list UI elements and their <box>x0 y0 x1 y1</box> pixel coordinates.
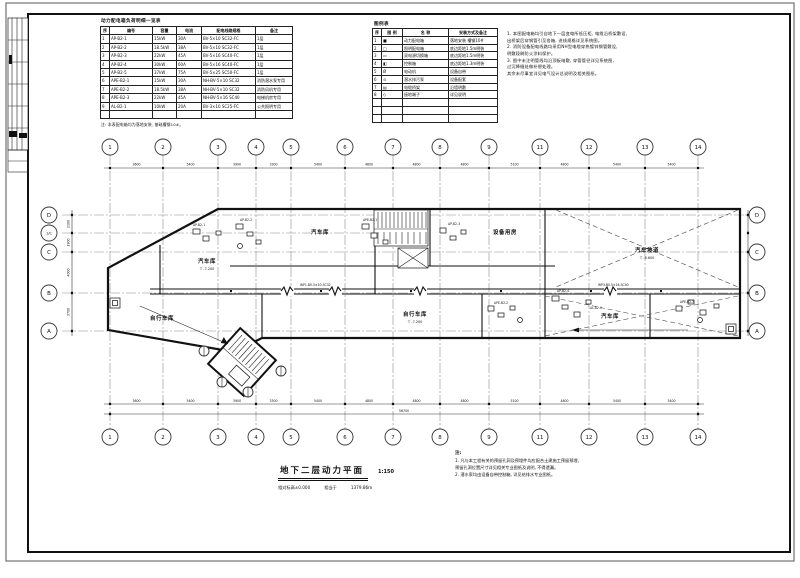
svg-text:12: 12 <box>586 145 593 151</box>
table-cell: 75A <box>177 69 202 77</box>
svg-text:3: 3 <box>216 435 219 441</box>
equipment-tag: APE-B2-3 <box>680 300 694 304</box>
equipment-tag: AP-B2-2 <box>240 218 252 222</box>
table-cell: NH-BV-5×10 SC32 <box>202 77 256 85</box>
table-cell <box>177 111 202 119</box>
table-cell: 1层 <box>256 35 293 43</box>
table-cell: AP-B2-5 <box>110 69 153 77</box>
svg-text:5400: 5400 <box>186 399 194 403</box>
svg-text:B: B <box>47 291 51 297</box>
table-cell: 5 <box>101 69 110 77</box>
equipment-tag: WP3-BV-5×16-SC40 <box>598 283 629 287</box>
table-cell: AP-B2-2 <box>110 44 153 52</box>
table-cell: 1层 <box>256 52 293 60</box>
equipment-tag: APE-B2-2 <box>494 301 508 305</box>
table-cell: 沿墙明敷 <box>449 84 498 92</box>
svg-text:7: 7 <box>391 145 394 151</box>
table-cell <box>403 115 449 123</box>
svg-text:14: 14 <box>695 435 702 441</box>
table-cell <box>373 107 382 115</box>
table-cell: ▭ <box>382 52 403 60</box>
table-cell: 5 <box>373 68 382 76</box>
table-cell: 电缆桥架 <box>403 84 449 92</box>
svg-text:4800: 4800 <box>460 163 468 167</box>
table-header-cell: 序 <box>373 29 382 37</box>
table-cell: BV-5×16 SC40-FC <box>202 61 256 69</box>
elevation-reference-row: 相对标高±0.000 相当于 1379.86m <box>278 485 478 491</box>
power-table-title: 动力配电箱负荷明细一览表 <box>101 18 161 24</box>
table-cell <box>449 107 498 115</box>
table-cell: 1层 <box>256 61 293 69</box>
table-cell: 1 <box>373 37 382 45</box>
svg-text:5400: 5400 <box>186 163 194 167</box>
table-cell: 3 <box>101 52 110 60</box>
table-cell <box>449 115 498 123</box>
svg-text:13: 13 <box>642 435 649 441</box>
svg-text:2: 2 <box>161 435 164 441</box>
table-cell <box>403 99 449 107</box>
table-cell: 8 <box>101 94 110 102</box>
svg-text:C: C <box>755 250 759 256</box>
table-cell: BV-5×25 SC50-FC <box>202 69 256 77</box>
table-cell: 2 <box>101 44 110 52</box>
svg-text:3700: 3700 <box>67 308 71 316</box>
svg-text:2100: 2100 <box>67 220 71 228</box>
table-cell: 18.5kW <box>153 44 177 52</box>
svg-text:4800: 4800 <box>560 399 568 403</box>
table-cell: 45A <box>177 94 202 102</box>
svg-text:4800: 4800 <box>412 163 420 167</box>
equipment-tag: AP-B2-1 <box>193 223 205 227</box>
table-cell: 18.5kW <box>153 86 177 94</box>
elevation-ref-middle: 相当于 <box>324 485 337 491</box>
svg-text:5: 5 <box>289 145 292 151</box>
svg-text:3300: 3300 <box>269 163 277 167</box>
side-title-strip <box>8 18 28 172</box>
plan-notes-header: 注: <box>455 450 579 457</box>
table-cell: 8 <box>373 91 382 99</box>
svg-text:5400: 5400 <box>667 163 675 167</box>
table-cell: 详见说明 <box>449 91 498 99</box>
equipment-tag: AP-B2-3 <box>448 222 460 226</box>
svg-text:5100: 5100 <box>510 163 518 167</box>
table-cell: 7 <box>373 84 382 92</box>
svg-text:5400: 5400 <box>314 163 322 167</box>
table-cell: APE-B2-3 <box>110 94 153 102</box>
table-header-cell: 备注 <box>256 27 293 35</box>
table-cell: AP-B2-1 <box>110 35 153 43</box>
svg-text:A: A <box>755 329 759 335</box>
table-cell: 1层 <box>256 69 293 77</box>
table-cell: 4 <box>373 60 382 68</box>
room-label: 自行车库 <box>150 314 174 322</box>
note-line: 其余未尽事宜详见电气设计总说明及相关图纸。 <box>507 71 707 78</box>
svg-text:3600: 3600 <box>132 163 140 167</box>
table-cell: APE-B2-1 <box>110 77 153 85</box>
table-cell: 设备配套 <box>449 76 498 84</box>
table-cell <box>382 107 403 115</box>
table-cell: ◧ <box>382 60 403 68</box>
table-cell: 15kW <box>153 77 177 85</box>
table-cell <box>382 99 403 107</box>
table-cell: 落地安装 槽钢10# <box>449 37 498 45</box>
table-cell: 10kW <box>153 103 177 111</box>
svg-text:A: A <box>47 329 51 335</box>
table-cell: 4 <box>101 61 110 69</box>
table-cell <box>382 115 403 123</box>
elevation-ref-label: 相对标高±0.000 <box>278 485 310 491</box>
table-cell: 动力配电箱 <box>403 37 449 45</box>
table-header-cell: 序 <box>101 27 110 35</box>
svg-text:1: 1 <box>108 435 111 441</box>
legend-table: 序图 例名 称安装方式及备注1■动力配电箱落地安装 槽钢10#2□照明配电箱底边… <box>372 28 498 123</box>
table-cell: ⊙ <box>382 76 403 84</box>
ramp-arrow <box>572 328 688 333</box>
svg-text:B: B <box>755 291 759 297</box>
table-cell: 38A <box>177 44 202 52</box>
table-cell: 38A <box>177 86 202 94</box>
table-cell: 底边距地1.3m明装 <box>449 60 498 68</box>
table-header-cell: 安装方式及备注 <box>449 29 498 37</box>
table-cell: 37kW <box>153 69 177 77</box>
svg-text:3900: 3900 <box>233 399 241 403</box>
svg-text:D: D <box>755 213 759 219</box>
note-line: 过沉降缝处做补偿处理。 <box>507 64 707 71</box>
elevator-shaft <box>398 248 428 268</box>
svg-text:D: D <box>47 213 51 219</box>
table-header-cell: 编号 <box>110 27 153 35</box>
svg-text:5400: 5400 <box>613 163 621 167</box>
table-cell: 2 <box>373 45 382 53</box>
note-line: 2. 潜水泵均由设备自带控制箱, 详见给排水专业图纸。 <box>455 472 579 479</box>
svg-text:5100: 5100 <box>510 399 518 403</box>
svg-text:4800: 4800 <box>412 399 420 403</box>
table-cell: 公共照明专用 <box>256 103 293 111</box>
table-cell: BV-5×10 SC32-FC <box>202 35 256 43</box>
general-notes: 1. 本图配电箱均引自地下一层变电所低压柜, 电缆沿桥架敷设, 出桥架后穿钢管引… <box>507 31 707 77</box>
svg-text:12: 12 <box>586 435 593 441</box>
table-header-cell: 名 称 <box>403 29 449 37</box>
table-cell: NH-BV-5×16 SC40 <box>202 94 256 102</box>
svg-text:▽ -6.600: ▽ -6.600 <box>640 256 655 260</box>
svg-text:9: 9 <box>487 435 491 441</box>
table-cell: 20A <box>177 103 202 111</box>
drawing-title-block: 地下二层动力平面1:150 相对标高±0.000 相当于 1379.86m <box>278 458 478 491</box>
note-line: 明敷段刷防火涂料保护。 <box>507 51 707 58</box>
svg-text:4000: 4000 <box>67 268 71 276</box>
room-label: 汽车库 <box>198 257 216 265</box>
legend-table-title: 图例表 <box>374 21 389 27</box>
table-cell: BV-3×10 SC25-FC <box>202 103 256 111</box>
table-cell: AP-B2-3 <box>110 52 153 60</box>
table-header-cell: 图 例 <box>382 29 403 37</box>
svg-text:▽ -7.200: ▽ -7.200 <box>200 267 215 271</box>
room-label: 设备用房 <box>493 228 517 236</box>
table-cell <box>449 99 498 107</box>
svg-text:8: 8 <box>438 435 442 441</box>
table-cell <box>373 99 382 107</box>
table-cell: 消防风机专用 <box>256 86 293 94</box>
table-cell: 电动机 <box>403 68 449 76</box>
table-header-cell: 配电线路规格 <box>202 27 256 35</box>
svg-text:▽ -7.200: ▽ -7.200 <box>408 320 423 324</box>
table-cell: 60A <box>177 61 202 69</box>
table-cell <box>101 111 110 119</box>
svg-text:11: 11 <box>537 435 544 441</box>
table-cell: 控制箱 <box>403 60 449 68</box>
svg-text:3900: 3900 <box>233 163 241 167</box>
table-cell <box>256 111 293 119</box>
drawing-title: 地下二层动力平面 <box>278 464 368 481</box>
room-label: 自行车库 <box>403 310 427 318</box>
table-cell <box>403 107 449 115</box>
room-label: 汽车坡道 <box>635 246 659 254</box>
table-cell: 设备自带 <box>449 68 498 76</box>
svg-text:3: 3 <box>216 145 219 151</box>
svg-text:56700: 56700 <box>399 409 409 413</box>
table-cell: 6 <box>373 76 382 84</box>
table-header-cell: 容量 <box>153 27 177 35</box>
svg-text:6: 6 <box>343 435 347 441</box>
drawing-scale: 1:150 <box>378 469 394 475</box>
table-cell <box>153 111 177 119</box>
table-cell: Ø <box>382 68 403 76</box>
table-cell: AP-B2-4 <box>110 61 153 69</box>
equipment-tag: APE-B2-1 <box>363 218 377 222</box>
table-cell: 15kW <box>153 35 177 43</box>
table-cell: APE-B2-2 <box>110 86 153 94</box>
equipment-tag: WP1-BV-5×10-SC32 <box>300 283 331 287</box>
power-table-note: 注: 本表配电箱均为落地安装, 基础槽钢10#。 <box>101 122 183 128</box>
svg-text:4800: 4800 <box>460 399 468 403</box>
power-table: 序编号容量电流配电线路规格备注1AP-B2-115kW30ABV-5×10 SC… <box>100 26 293 119</box>
svg-text:8: 8 <box>438 145 442 151</box>
table-cell: 电梯机房专用 <box>256 94 293 102</box>
stair-core <box>374 210 428 246</box>
svg-text:4800: 4800 <box>365 399 373 403</box>
table-cell: NH-BV-5×10 SC32 <box>202 86 256 94</box>
table-cell: ▤ <box>382 84 403 92</box>
table-cell: ◇ <box>382 91 403 99</box>
room-label: 汽车库 <box>601 312 619 320</box>
svg-text:3600: 3600 <box>132 399 140 403</box>
svg-text:1/C: 1/C <box>46 231 52 235</box>
equipment-tag: AL-B2-1 <box>590 306 602 310</box>
table-cell: 底边距地1.5m明装 <box>449 52 498 60</box>
equipment-tag: AP-B2-4 <box>557 289 569 293</box>
table-cell: □ <box>382 45 403 53</box>
table-cell: 22kW <box>153 94 177 102</box>
table-cell: 30A <box>177 77 202 85</box>
svg-text:1: 1 <box>108 145 111 151</box>
table-cell: 潜水排污泵 <box>403 76 449 84</box>
table-cell: 消防潜水泵专用 <box>256 77 293 85</box>
svg-text:14: 14 <box>695 145 702 151</box>
svg-text:4800: 4800 <box>560 163 568 167</box>
svg-text:13: 13 <box>642 145 649 151</box>
table-header-cell: 电流 <box>177 27 202 35</box>
svg-text:7: 7 <box>391 435 394 441</box>
table-cell: 3 <box>373 52 382 60</box>
plan-notes: 注: 1. 凡与本工程有关的预留孔洞及预埋件均应配合土建施工预留预埋, 预留孔洞… <box>455 450 579 479</box>
svg-text:5: 5 <box>289 435 292 441</box>
table-cell: 45A <box>177 52 202 60</box>
table-cell: ■ <box>382 37 403 45</box>
table-cell: 30kW <box>153 61 177 69</box>
svg-text:11: 11 <box>537 145 544 151</box>
table-cell <box>110 111 153 119</box>
svg-text:5400: 5400 <box>613 399 621 403</box>
table-cell: 底边距地1.5m明装 <box>449 45 498 53</box>
note-line: 2. 消防设备配电线路均采用NH型电缆穿热镀锌钢管敷设, <box>507 44 707 51</box>
table-cell: BV-5×10 SC32-FC <box>202 44 256 52</box>
table-cell: 22kW <box>153 52 177 60</box>
table-cell: AL-B2-1 <box>110 103 153 111</box>
svg-text:4800: 4800 <box>365 163 373 167</box>
plan-notes-lines: 1. 凡与本工程有关的预留孔洞及预埋件均应配合土建施工预留预埋, 预留孔洞位置尺… <box>455 458 579 478</box>
svg-text:5400: 5400 <box>314 399 322 403</box>
svg-text:4: 4 <box>254 145 258 151</box>
svg-text:1900: 1900 <box>67 238 71 246</box>
table-cell <box>202 111 256 119</box>
drawing-sheet: 1122334455667788991111121213131414 D1/CC… <box>0 0 800 578</box>
room-label: 汽车库 <box>311 228 329 236</box>
note-line: 1. 本图配电箱均引自地下一层变电所低压柜, 电缆沿桥架敷设, <box>507 31 707 38</box>
table-cell: BV-5×16 SC40-FC <box>202 52 256 60</box>
elevation-ref-value: 1379.86m <box>351 485 372 491</box>
svg-text:C: C <box>47 250 51 256</box>
table-cell: 照明配电箱 <box>403 45 449 53</box>
table-cell <box>373 115 382 123</box>
table-cell: 1 <box>101 35 110 43</box>
svg-text:5400: 5400 <box>667 399 675 403</box>
table-cell: 30A <box>177 35 202 43</box>
table-cell: 6 <box>101 77 110 85</box>
svg-text:9: 9 <box>487 145 491 151</box>
table-cell: 接地端子 <box>403 91 449 99</box>
svg-text:3300: 3300 <box>269 399 277 403</box>
svg-text:4: 4 <box>254 435 258 441</box>
svg-text:2: 2 <box>161 145 164 151</box>
table-cell: 9 <box>101 103 110 111</box>
svg-text:6: 6 <box>343 145 347 151</box>
table-cell: 7 <box>101 86 110 94</box>
note-line: 预留孔洞位置尺寸详见相关专业图纸及说明, 不得遗漏。 <box>455 465 579 472</box>
table-cell: 双电源切换箱 <box>403 52 449 60</box>
table-cell: 1层 <box>256 44 293 52</box>
